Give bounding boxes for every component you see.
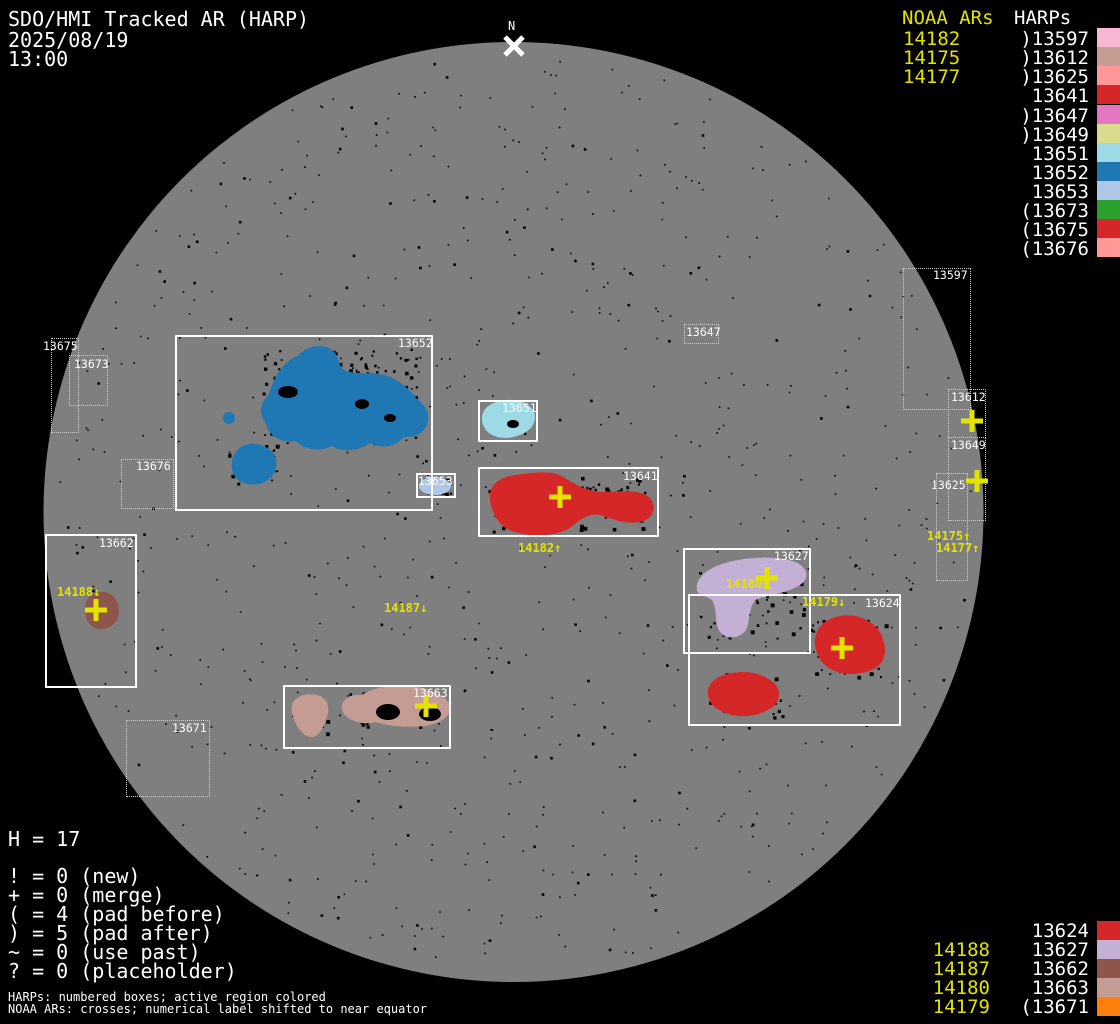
noaa-disk-label: 14187↓ [384,602,427,614]
harp-color-swatch [1097,66,1120,85]
harp-label: 13663 [413,688,448,700]
noaa-disk-label: 14180↓ [726,578,769,590]
stat-placeholder: ? = 0 (placeholder) [8,961,237,981]
time-label: 13:00 [8,49,68,69]
harp-color-swatch [1097,219,1120,238]
harp-label: 13652 [398,338,433,350]
harp-label: 13647 [686,327,721,339]
harp-item: (13671 [1020,998,1089,1017]
harp-label: 13662 [99,538,134,550]
harp-color-swatch [1097,143,1120,162]
harp-label: 13625 [931,480,966,492]
harp-color-swatch [1097,997,1120,1016]
harp-color-swatch [1097,105,1120,124]
harp-color-swatch [1097,921,1120,940]
harp-label: 13673 [74,359,109,371]
harp-item: 13641 [1032,87,1089,106]
harp-color-swatch [1097,28,1120,47]
harp-color-swatch [1097,200,1120,219]
harp-color-swatch [1097,238,1120,257]
harp-color-swatch [1097,124,1120,143]
page-title: SDO/HMI Tracked AR (HARP) [8,9,309,29]
harp-box-13652 [175,335,433,511]
harp-color-swatch [1097,978,1120,997]
noaa-disk-label: 14188↓ [57,586,100,598]
harp-label: 13671 [172,723,207,735]
harp-count: H = 17 [8,829,80,849]
solar-harp-plot: 13652 13653 13651 13641 13662 13663 1362… [0,0,1120,1024]
harp-label: 13641 [623,471,658,483]
harp-item: (13676 [1020,240,1089,259]
harp-label: 13597 [933,270,968,282]
harp-color-swatch [1097,162,1120,181]
harp-label: 13624 [865,598,900,610]
harp-label: 13649 [951,440,986,452]
harp-label: 13612 [951,392,986,404]
footnote-noaa: NOAA ARs: crosses; numerical label shift… [8,1003,427,1015]
noaa-disk-label: 14179↓ [802,596,845,608]
harp-label: 13676 [136,461,171,473]
noaa-disk-label: 14182↑ [518,542,561,554]
noaa-ars-header: NOAA ARs [902,9,994,28]
north-label: N [508,19,515,33]
noaa-item: 14179 [933,998,990,1017]
harp-color-swatch [1097,959,1120,978]
harp-color-swatch [1097,47,1120,66]
noaa-disk-label: 14177↑ [936,542,979,554]
noaa-item: 14177 [903,68,960,87]
harp-color-swatch [1097,181,1120,200]
harp-label: 13675 [43,341,78,353]
harps-header: HARPs [1014,9,1071,28]
harp-label: 13627 [774,551,809,563]
harp-label: 13653 [418,476,453,488]
harp-box-13624 [688,594,901,726]
harp-box-13662 [45,534,137,688]
harp-label: 13651 [502,403,537,415]
harp-color-swatch [1097,940,1120,959]
harp-color-swatch [1097,85,1120,104]
